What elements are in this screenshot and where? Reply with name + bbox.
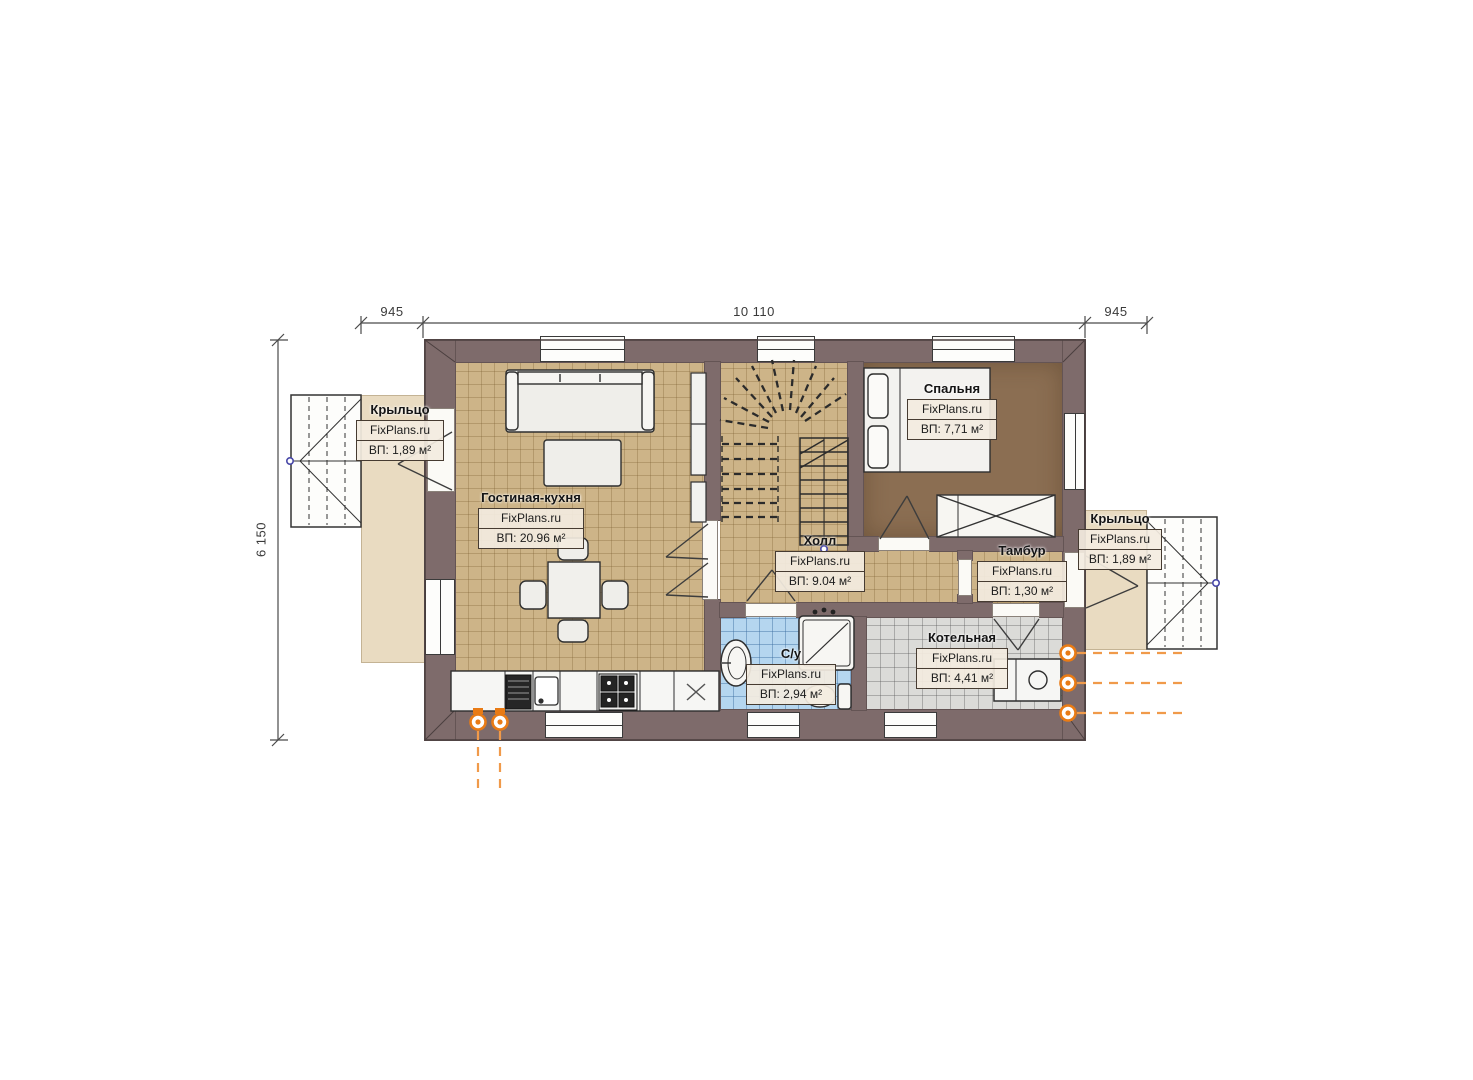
watermark-text: FixPlans.ru — [479, 509, 583, 529]
watermark-text: FixPlans.ru — [357, 421, 443, 441]
dimension-top-center: 10 110 — [423, 304, 1085, 319]
room-name: Крыльцо — [1090, 511, 1149, 526]
wall-hall-south-b — [797, 603, 992, 617]
room-area-text: ВП: 20.96 м² — [479, 529, 583, 548]
wall-living-bath-lower — [705, 600, 720, 710]
room-label-box: FixPlans.ru ВП: 2,94 м² — [746, 664, 836, 705]
room-area-text: ВП: 1,89 м² — [357, 441, 443, 460]
watermark-text: FixPlans.ru — [917, 649, 1007, 669]
room-label-vestibule: Тамбур FixPlans.ru ВП: 1,30 м² — [975, 543, 1069, 602]
room-label-living-kitchen: Гостиная-кухня FixPlans.ru ВП: 20.96 м² — [476, 490, 586, 549]
room-area-text: ВП: 1,89 м² — [1079, 550, 1161, 569]
room-area-text: ВП: 2,94 м² — [747, 685, 835, 704]
watermark-text: FixPlans.ru — [747, 665, 835, 685]
room-label-porch-right: Крыльцо FixPlans.ru ВП: 1,89 м² — [1074, 511, 1166, 570]
room-area-text: ВП: 1,30 м² — [978, 582, 1066, 601]
room-name: Тамбур — [998, 543, 1045, 558]
room-name: Гостиная-кухня — [481, 490, 581, 505]
door-opening-vestibule — [958, 559, 972, 596]
watermark-text: FixPlans.ru — [1079, 530, 1161, 550]
room-label-box: FixPlans.ru ВП: 1,30 м² — [977, 561, 1067, 602]
room-name: Спальня — [924, 381, 980, 396]
room-label-box: FixPlans.ru ВП: 9.04 м² — [775, 551, 865, 592]
room-area-text: ВП: 4,41 м² — [917, 669, 1007, 688]
room-area-text: ВП: 7,71 м² — [908, 420, 996, 439]
wall-living-hall-upper — [705, 362, 720, 520]
room-name: Котельная — [928, 630, 996, 645]
room-area-text: ВП: 9.04 м² — [776, 572, 864, 591]
window-left-living — [425, 579, 455, 655]
room-label-box: FixPlans.ru ВП: 1,89 м² — [1078, 529, 1162, 570]
dimension-top-left: 945 — [361, 304, 423, 319]
watermark-text: FixPlans.ru — [908, 400, 996, 420]
wall-bedroom-west — [848, 362, 863, 537]
room-label-bedroom: Спальня FixPlans.ru ВП: 7,71 м² — [905, 381, 999, 440]
porch-left-steps — [291, 395, 361, 527]
window-bottom-kitchen — [545, 712, 623, 738]
wall-exterior-left — [425, 340, 455, 740]
room-label-porch-left: Крыльцо FixPlans.ru ВП: 1,89 м² — [352, 402, 448, 461]
door-opening-boiler — [992, 603, 1040, 617]
room-label-box: FixPlans.ru ВП: 4,41 м² — [916, 648, 1008, 689]
window-bottom-bathroom — [747, 712, 800, 738]
window-top-stairs — [757, 336, 815, 362]
room-label-box: FixPlans.ru ВП: 7,71 м² — [907, 399, 997, 440]
room-name: Холл — [804, 533, 837, 548]
window-right-bedroom — [1064, 413, 1085, 490]
window-bottom-boiler — [884, 712, 937, 738]
window-top-bedroom — [932, 336, 1015, 362]
window-top-living — [540, 336, 625, 362]
door-opening-bathroom — [745, 603, 797, 617]
room-label-bathroom: С/у FixPlans.ru ВП: 2,94 м² — [744, 646, 838, 705]
room-name: С/у — [781, 646, 801, 661]
floor-plan-canvas: 945 10 110 945 6 150 — [0, 0, 1473, 1080]
wall-bath-boiler — [852, 617, 866, 710]
room-label-box: FixPlans.ru ВП: 20.96 м² — [478, 508, 584, 549]
room-label-boiler: Котельная FixPlans.ru ВП: 4,41 м² — [914, 630, 1010, 689]
door-opening-bedroom — [878, 537, 930, 551]
room-label-box: FixPlans.ru ВП: 1,89 м² — [356, 420, 444, 461]
dimension-left: 6 150 — [254, 509, 269, 571]
wall-hall-south-a — [720, 603, 745, 617]
watermark-text: FixPlans.ru — [776, 552, 864, 572]
wall-hall-south-c — [1040, 603, 1063, 617]
door-opening-living-hall — [702, 520, 718, 600]
room-label-hall: Холл FixPlans.ru ВП: 9.04 м² — [770, 533, 870, 592]
wall-vestibule-stub-bottom — [958, 595, 972, 603]
watermark-text: FixPlans.ru — [978, 562, 1066, 582]
dimension-top-right: 945 — [1085, 304, 1147, 319]
room-name: Крыльцо — [370, 402, 429, 417]
